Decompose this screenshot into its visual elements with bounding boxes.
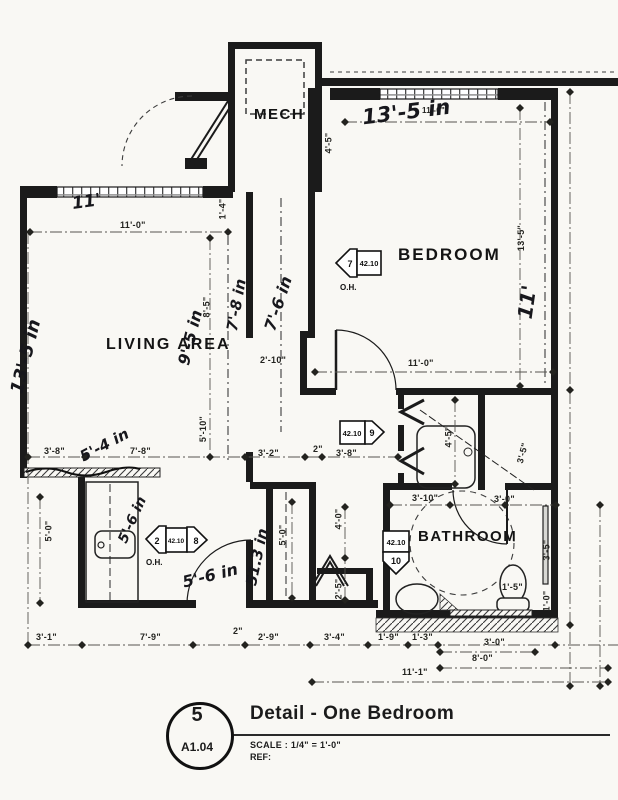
- dim-label: 3'-0": [494, 494, 515, 504]
- dim-label: 2'-9": [258, 632, 279, 642]
- ref-label: REF:: [250, 752, 271, 762]
- dim-label: 11'-1": [402, 667, 428, 677]
- room-label-bathroom: BATHROOM: [418, 528, 517, 545]
- dim-label: 3'-8": [336, 448, 357, 458]
- bifold-door-upper: [401, 400, 424, 424]
- tag-note: O.H.: [340, 283, 356, 292]
- floor-plan-linework: 7 42.10 O.H. 42.10 9 2 42.10 8 O.H. 42.1…: [0, 0, 618, 800]
- dim-label: 2'-10": [260, 355, 286, 365]
- dim-label: 5'-0": [277, 525, 287, 546]
- bedroom-door-swing: [336, 330, 396, 390]
- dim-label: 3'-2": [258, 448, 279, 458]
- scale-label: SCALE : 1/4" = 1'-0": [250, 740, 341, 750]
- dim-label: 1'-0": [541, 591, 551, 612]
- tag-arrow-number: 9: [369, 428, 374, 438]
- tag-arrow-number: 7: [347, 259, 352, 269]
- grab-bar-horizontal: [450, 610, 532, 616]
- dim-label: 4'-5": [443, 427, 453, 448]
- bifold-door-lower: [401, 448, 424, 474]
- tag-keynote: 42.10: [168, 538, 185, 545]
- dim-label: 5'-10": [198, 416, 208, 442]
- dim-label: 2": [313, 444, 323, 454]
- room-label-living-area: LIVING AREA: [106, 336, 231, 354]
- dim-label: 11'-0": [120, 220, 146, 230]
- detail-title: Detail - One Bedroom: [250, 703, 454, 725]
- dim-label: 11'-0": [408, 358, 434, 368]
- dim-label: 5'-0": [43, 521, 53, 542]
- dim-label: 8'-0": [472, 653, 493, 663]
- handwritten-dim: 11': [513, 284, 541, 321]
- tag-keynote: 42.10: [360, 259, 379, 268]
- dim-label: 7'-8": [130, 446, 151, 456]
- tag-arrow-number: 8: [193, 536, 198, 546]
- sheet-number: A1.04: [166, 740, 228, 754]
- dim-label: 1'-9": [378, 632, 399, 642]
- floor-plan-sheet: 7 42.10 O.H. 42.10 9 2 42.10 8 O.H. 42.1…: [0, 0, 618, 800]
- tag-keynote: 42.10: [343, 429, 362, 438]
- tag-arrow-number: 10: [391, 556, 401, 566]
- room-label-bedroom: BEDROOM: [398, 245, 501, 265]
- dim-label: 1'-4": [217, 199, 227, 220]
- dim-label: 2'-5": [333, 579, 343, 600]
- detail-number: 5: [166, 704, 228, 727]
- dim-label: 4'-0": [333, 509, 343, 530]
- tag-arrow-number: 2: [154, 536, 159, 546]
- dim-label: 2": [233, 626, 243, 636]
- window-strips: [24, 89, 498, 477]
- dim-label: 3'-10": [412, 493, 438, 503]
- dim-label: 3'-1": [36, 632, 57, 642]
- tag-note: O.H.: [146, 558, 162, 567]
- dim-label: 3'-4": [324, 632, 345, 642]
- dim-label: 7'-9": [140, 632, 161, 642]
- title-block-divider: [170, 734, 610, 736]
- dim-label: 1'-5": [502, 582, 523, 592]
- dim-label: 3'-0": [484, 637, 505, 647]
- vestibule-door-leaf: [194, 104, 232, 164]
- dim-label: 3'-5": [541, 540, 551, 561]
- dim-label: 4'-5": [323, 133, 333, 154]
- sink: [396, 584, 438, 614]
- dim-label: 3'-8": [44, 446, 65, 456]
- dim-label: 1'-3": [412, 632, 433, 642]
- handwritten-dim: 11': [71, 190, 102, 214]
- tag-keynote: 42.10: [387, 538, 406, 547]
- room-label-mech: MECH: [254, 106, 304, 123]
- dim-label: 13'-5": [516, 225, 526, 251]
